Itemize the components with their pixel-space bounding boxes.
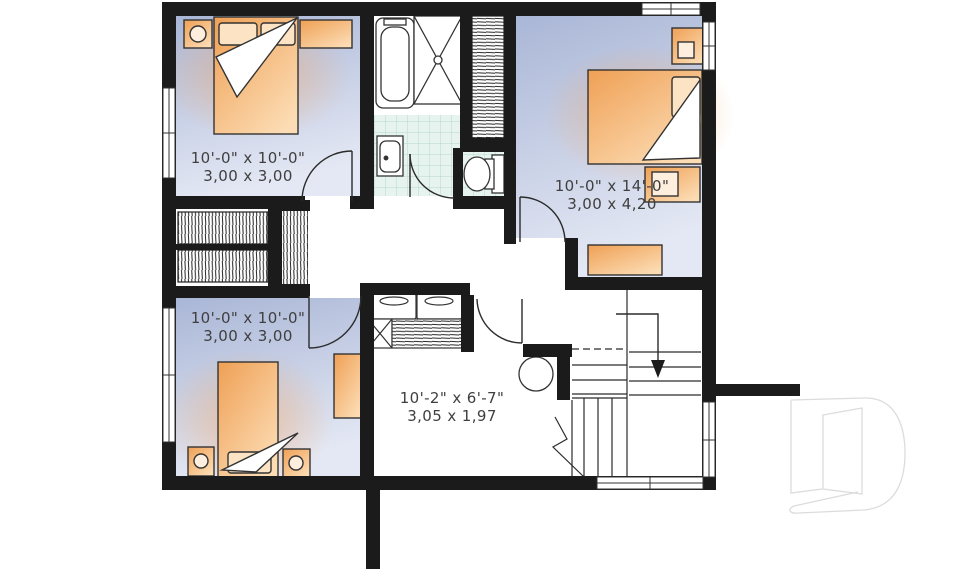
laundry-closet	[368, 294, 463, 348]
wall	[162, 2, 716, 16]
room-label-metric: 3,00 x 3,00	[203, 327, 293, 345]
window	[642, 3, 700, 15]
wall	[565, 277, 702, 290]
shower	[414, 16, 462, 104]
wall	[366, 490, 380, 569]
lamp-icon	[194, 454, 208, 468]
bathtub	[376, 18, 414, 108]
room-label-metric: 3,05 x 1,97	[407, 407, 497, 425]
wall	[350, 196, 374, 209]
window	[597, 477, 703, 489]
window	[163, 88, 175, 178]
window	[703, 402, 715, 477]
linen-closet	[472, 16, 504, 138]
room-label-metric: 3,00 x 4,20	[567, 195, 657, 213]
room-label-imperial: 10'-0" x 10'-0"	[191, 149, 306, 167]
wall	[360, 286, 374, 476]
room-label-imperial: 10'-0" x 10'-0"	[191, 309, 306, 327]
wall	[523, 344, 572, 357]
wall	[360, 16, 374, 209]
water-heater-or-column	[519, 357, 553, 391]
wall	[504, 2, 516, 244]
room-label-imperial: 10'-2" x 6'-7"	[400, 389, 505, 407]
closet-doors	[282, 211, 308, 284]
wall	[557, 357, 570, 400]
wall	[176, 244, 268, 250]
closet-shelves	[178, 212, 268, 244]
vanity-sink	[377, 136, 403, 176]
wall	[461, 295, 474, 352]
wall	[268, 205, 282, 290]
wall	[162, 286, 309, 298]
wall	[280, 200, 310, 211]
wall	[360, 283, 470, 295]
washer-lid	[380, 297, 408, 305]
floor-plan-drawing: 10'-0" x 10'-0" 3,00 x 3,00 10'-0" x 14'…	[0, 0, 960, 569]
wall	[460, 2, 472, 148]
toilet	[464, 155, 504, 193]
floor-plan-page: 10'-0" x 10'-0" 3,00 x 3,00 10'-0" x 14'…	[0, 0, 960, 569]
window	[163, 308, 175, 442]
window	[703, 22, 715, 70]
lamp-icon	[678, 42, 694, 58]
bifold-doors	[392, 319, 463, 348]
room-label-imperial: 10'-0" x 14'-0"	[555, 177, 670, 195]
wall	[453, 148, 463, 200]
room-label-metric: 3,00 x 3,00	[203, 167, 293, 185]
wall	[716, 384, 800, 396]
closet-shelves	[178, 250, 268, 282]
dresser	[334, 354, 362, 418]
lamp-icon	[190, 26, 206, 42]
dresser	[300, 20, 352, 48]
dryer-lid	[425, 297, 453, 305]
dresser	[588, 245, 662, 275]
lamp-icon	[289, 456, 303, 470]
